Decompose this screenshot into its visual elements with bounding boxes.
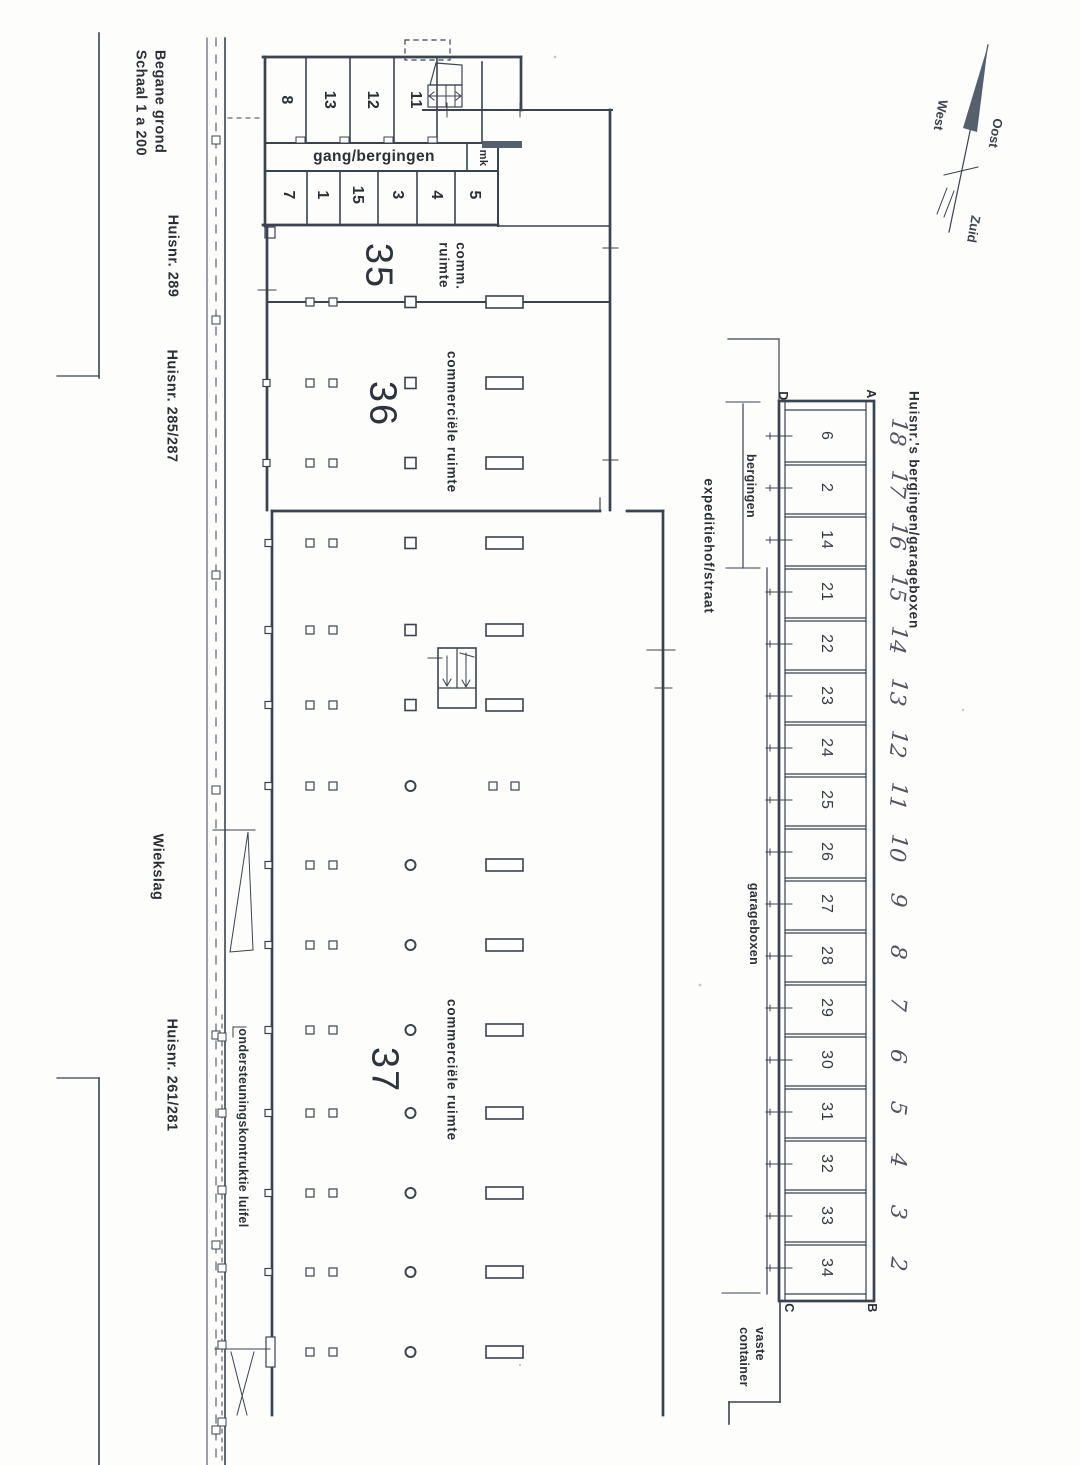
- corner-D: D: [775, 391, 791, 400]
- handwritten-number: 17: [881, 468, 912, 499]
- handwritten-number: 10: [881, 832, 912, 863]
- scanned-floor-plan-page: Begane grond Schaal 1 a 200 Huisnr. 289 …: [0, 0, 1080, 1465]
- corridor-label: gang/bergingen: [313, 147, 435, 167]
- storage-room-11: 11: [405, 91, 425, 109]
- storage-room-15: 15: [347, 186, 367, 205]
- garage-box-number: 23: [816, 686, 836, 706]
- garage-box-number: 29: [816, 998, 836, 1018]
- storage-room-4: 4: [426, 190, 446, 199]
- garage-box-number: 22: [816, 634, 836, 654]
- storage-room-1: 1: [312, 190, 332, 199]
- unit-36-label: commerciële ruimte: [443, 351, 460, 493]
- corner-B: B: [864, 1303, 880, 1312]
- unit-35-number: 35: [354, 243, 403, 289]
- compass-needle: [937, 45, 988, 232]
- canopy-note-label: ondersteuningskontruktie luifel: [235, 1028, 251, 1227]
- street-label-huisnr-261-281: Huisnr. 261/281: [162, 1018, 181, 1131]
- plot-boundary-lines: [57, 33, 99, 1465]
- unit37-columns: [265, 537, 523, 1358]
- garage-box-number: 27: [816, 894, 836, 914]
- storage-room-13: 13: [319, 91, 339, 110]
- scan-noise: [519, 56, 964, 1367]
- garage-box-number: 6: [816, 431, 836, 441]
- unit37-stair: [428, 648, 476, 708]
- street-lines: [207, 38, 263, 1465]
- unit-37-number: 37: [360, 1047, 409, 1093]
- bergingen-dim-label: bergingen: [743, 454, 759, 518]
- building-walls: [258, 110, 675, 1415]
- handwritten-number: 16: [881, 520, 912, 551]
- garageboxen-dim-label: garageboxen: [746, 883, 762, 965]
- garage-box-number: 26: [816, 842, 836, 862]
- garage-box-number: 32: [816, 1154, 836, 1174]
- garage-box-number: 21: [816, 582, 836, 602]
- garage-box-number: 31: [816, 1102, 836, 1122]
- corner-A: A: [863, 389, 879, 398]
- handwritten-number: 18: [881, 416, 912, 447]
- garage-box-number: 25: [816, 790, 836, 810]
- dimension-lines: [722, 402, 792, 1294]
- street-label-wiekslag: Wiekslag: [148, 834, 167, 901]
- handwritten-number: 14: [881, 624, 912, 655]
- garage-box-number: 14: [816, 530, 836, 550]
- street-label-huisnr-289: Huisnr. 289: [163, 215, 182, 298]
- unit-37-label: commerciële ruimte: [443, 999, 460, 1141]
- storage-room-7: 7: [278, 190, 298, 199]
- title-block: Begane grond Schaal 1 a 200: [131, 50, 168, 156]
- corner-C: C: [781, 1303, 797, 1312]
- garage-box-number: 34: [816, 1258, 836, 1278]
- vaste-container-label: vaste container: [736, 1327, 768, 1387]
- expeditiehof-label: expeditiehof/straat: [700, 478, 717, 613]
- storage-room-3: 3: [387, 190, 407, 199]
- garage-box-number: 30: [816, 1050, 836, 1070]
- garage-box-number: 28: [816, 946, 836, 966]
- street-label-huisnr-285-287: Huisnr. 285/287: [162, 349, 181, 462]
- handwritten-number: 12: [881, 728, 912, 759]
- handwritten-number: 13: [881, 676, 912, 707]
- unit-35-label: comm. ruimte: [435, 242, 470, 290]
- handwritten-number: 15: [881, 572, 912, 603]
- garage-box-number: 2: [816, 483, 836, 493]
- storage-room-12: 12: [362, 91, 382, 110]
- unit-36-number: 36: [358, 381, 407, 427]
- mk-closet-label: mk: [476, 150, 490, 167]
- garage-box-number: 24: [816, 738, 836, 758]
- storage-room-8: 8: [276, 95, 296, 104]
- storage-room-5: 5: [464, 190, 484, 199]
- garage-box-number: 33: [816, 1206, 836, 1226]
- handwritten-number: 11: [881, 780, 912, 811]
